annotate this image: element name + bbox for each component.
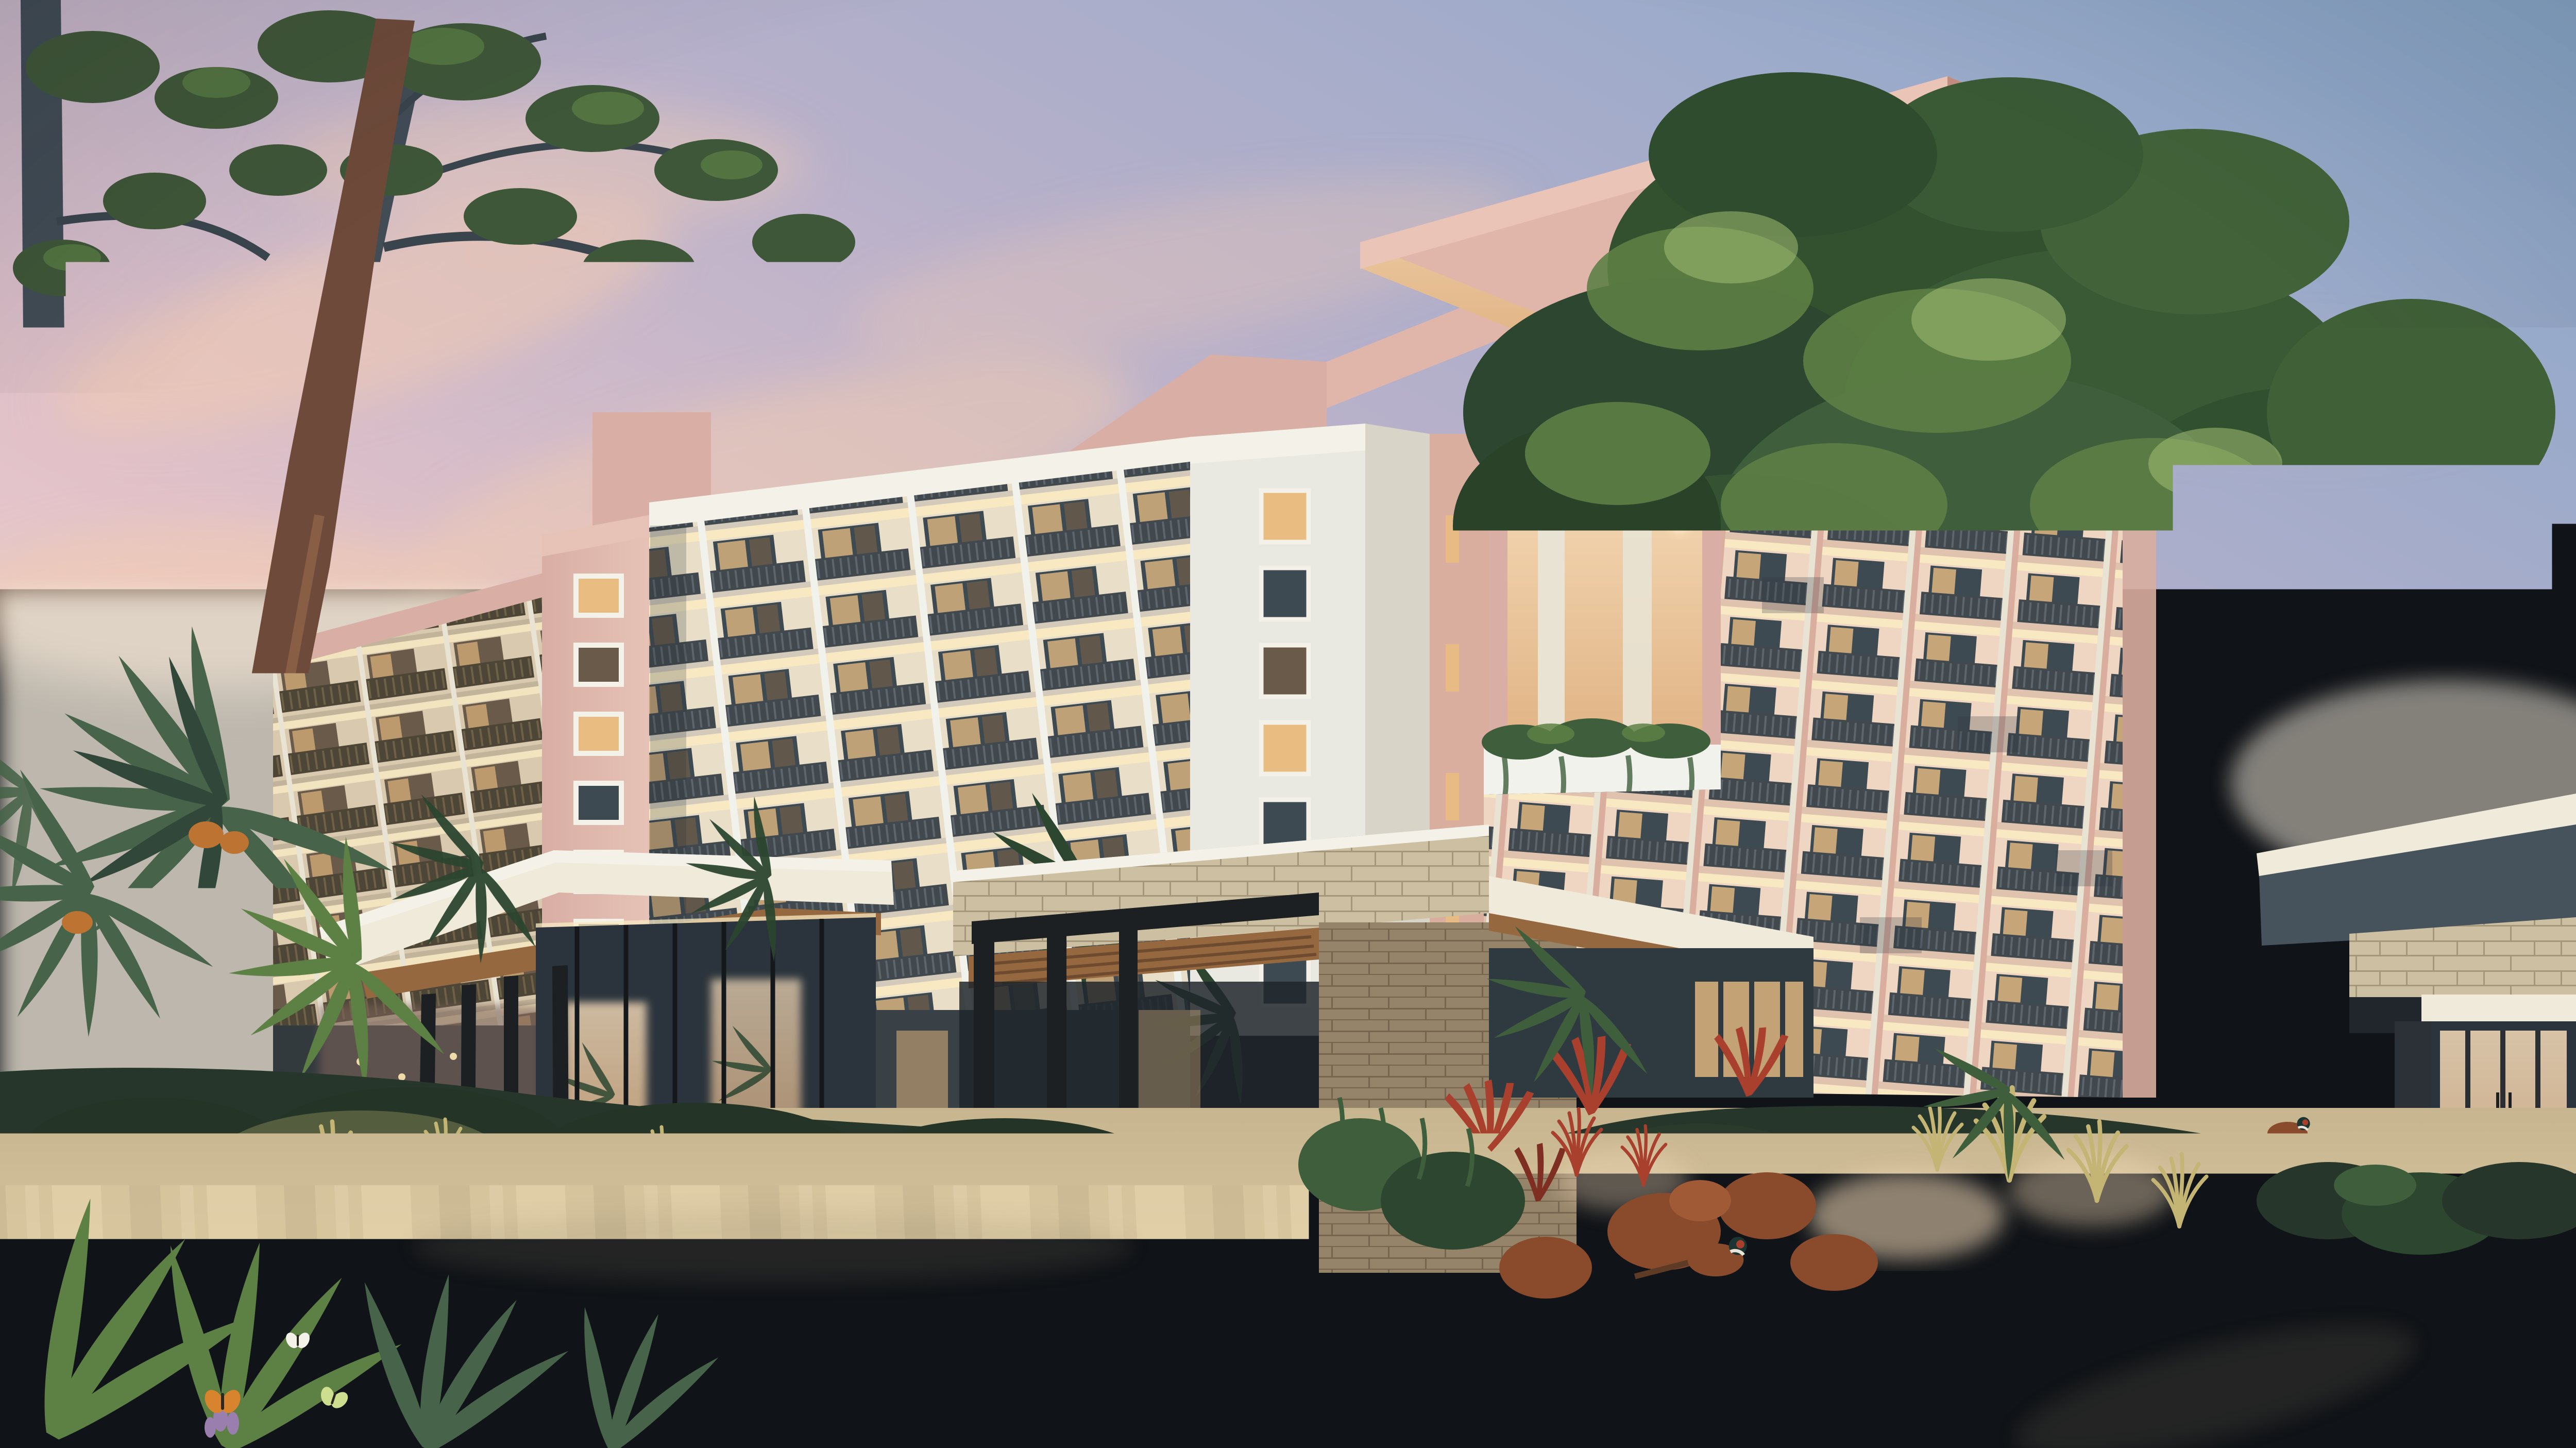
architectural-rendering: [0, 0, 2576, 1448]
vignette: [0, 0, 2576, 1448]
rendering-canvas: [0, 0, 2576, 1448]
